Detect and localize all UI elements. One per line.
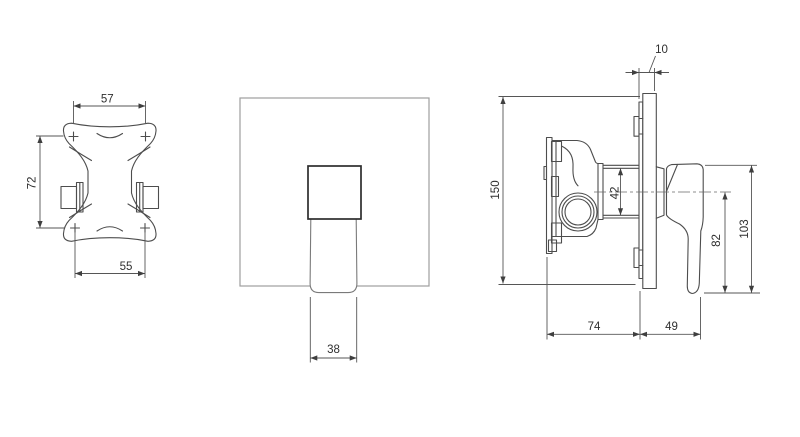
dimension-74-49: 74 49 bbox=[547, 257, 701, 340]
dimension-103: 103 bbox=[705, 165, 757, 292]
valve-body-contour bbox=[562, 146, 579, 186]
bracket-side-bosses bbox=[61, 183, 159, 213]
dim-label-handle-projection: 49 bbox=[665, 321, 678, 333]
dim-label-plate-thickness: 10 bbox=[655, 44, 668, 56]
lever-cap-front bbox=[308, 166, 361, 219]
dim-label-lever-length: 82 bbox=[711, 234, 723, 247]
dimension-55: 55 bbox=[75, 233, 145, 278]
side-view: 10 150 42 82 103 74 bbox=[490, 44, 760, 340]
inlet-port-inner bbox=[565, 199, 591, 225]
dimension-42: 42 bbox=[610, 168, 624, 215]
technical-drawing: 57 72 55 38 bbox=[0, 0, 800, 437]
dim-label-handle-height: 103 bbox=[739, 219, 751, 238]
dimension-57: 57 bbox=[74, 93, 146, 124]
dim-label-handle-width: 38 bbox=[327, 344, 340, 356]
dim-label-bracket-top-spacing: 57 bbox=[101, 93, 114, 105]
dim-label-plate-height: 150 bbox=[490, 180, 502, 199]
lever-front bbox=[310, 219, 357, 293]
dimension-72: 72 bbox=[27, 136, 65, 228]
wall-plate-side bbox=[634, 94, 656, 289]
drawing-canvas: 57 72 55 38 bbox=[0, 0, 800, 437]
trim-front-view: 38 bbox=[240, 98, 429, 363]
dim-label-bracket-bottom-spacing: 55 bbox=[120, 261, 133, 273]
handle-body-lever bbox=[667, 164, 704, 294]
dim-label-body-depth: 74 bbox=[588, 321, 601, 333]
handle-side bbox=[656, 164, 703, 294]
outlet-flange bbox=[598, 164, 603, 220]
valve-body bbox=[552, 141, 639, 237]
dim-label-outlet-spacing: 42 bbox=[610, 187, 622, 200]
inlet-port-mid bbox=[562, 196, 594, 228]
dim-label-bracket-vertical-spacing: 72 bbox=[27, 177, 39, 190]
handle-escutcheon bbox=[656, 167, 666, 218]
bracket-front-view: 57 72 55 bbox=[27, 93, 159, 278]
dimension-38: 38 bbox=[310, 297, 356, 363]
dimension-10: 10 bbox=[626, 44, 670, 99]
